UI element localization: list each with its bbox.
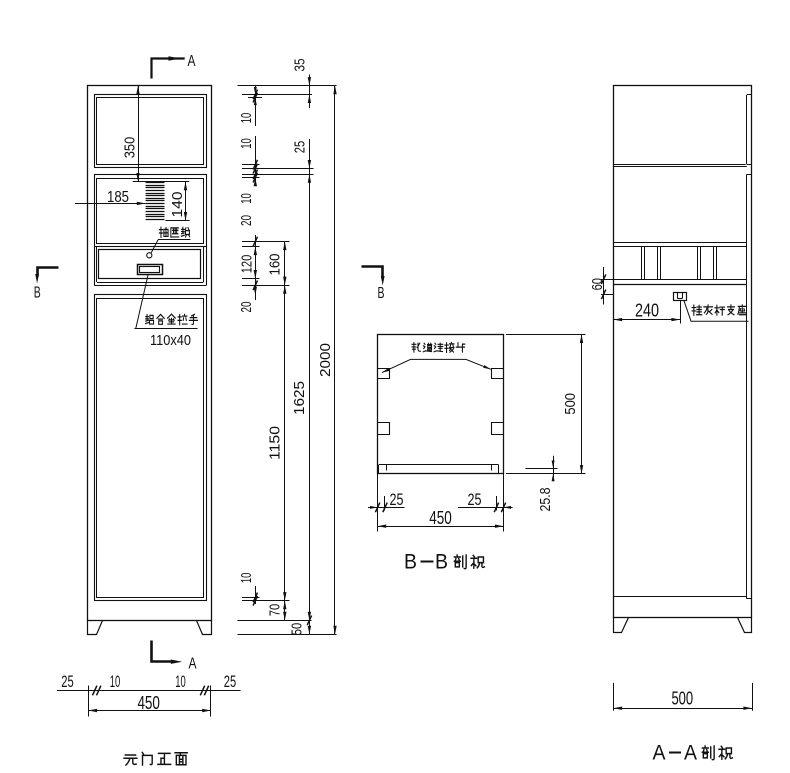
svg-text:B: B — [34, 285, 41, 302]
svg-text:10: 10 — [110, 672, 121, 691]
svg-text:50: 50 — [288, 623, 305, 635]
svg-text:A: A — [653, 742, 666, 765]
svg-text:25: 25 — [291, 141, 308, 153]
svg-text:240: 240 — [635, 300, 659, 320]
svg-text:450: 450 — [429, 508, 452, 528]
svg-text:10: 10 — [238, 113, 255, 124]
svg-text:B: B — [404, 551, 417, 574]
svg-text:60: 60 — [589, 278, 606, 290]
svg-text:25: 25 — [224, 672, 236, 691]
svg-text:120: 120 — [238, 255, 255, 274]
svg-text:140: 140 — [169, 192, 186, 218]
svg-text:70: 70 — [266, 604, 283, 616]
svg-text:350: 350 — [122, 137, 139, 159]
svg-text:450: 450 — [137, 693, 160, 713]
svg-text:25.8: 25.8 — [537, 488, 554, 512]
svg-text:25: 25 — [468, 490, 482, 509]
svg-text:2000: 2000 — [317, 343, 334, 377]
svg-text:35: 35 — [291, 59, 308, 72]
svg-text:110x40: 110x40 — [150, 332, 191, 349]
svg-text:B: B — [378, 285, 385, 302]
svg-text:25: 25 — [61, 672, 73, 691]
svg-text:25: 25 — [390, 490, 404, 509]
svg-text:A: A — [189, 655, 198, 672]
svg-text:1150: 1150 — [266, 426, 283, 460]
svg-text:20: 20 — [238, 215, 255, 226]
svg-text:500: 500 — [562, 393, 579, 415]
svg-text:A: A — [684, 742, 697, 765]
svg-text:10: 10 — [238, 193, 255, 204]
svg-text:160: 160 — [266, 254, 283, 276]
svg-text:10: 10 — [238, 138, 255, 149]
svg-text:1625: 1625 — [291, 381, 308, 415]
svg-text:10: 10 — [238, 573, 255, 584]
svg-text:10: 10 — [175, 672, 186, 691]
svg-text:20: 20 — [238, 302, 255, 313]
svg-text:A: A — [188, 53, 197, 70]
svg-text:B: B — [435, 551, 448, 574]
svg-text:185: 185 — [107, 189, 129, 206]
svg-text:500: 500 — [671, 689, 693, 709]
